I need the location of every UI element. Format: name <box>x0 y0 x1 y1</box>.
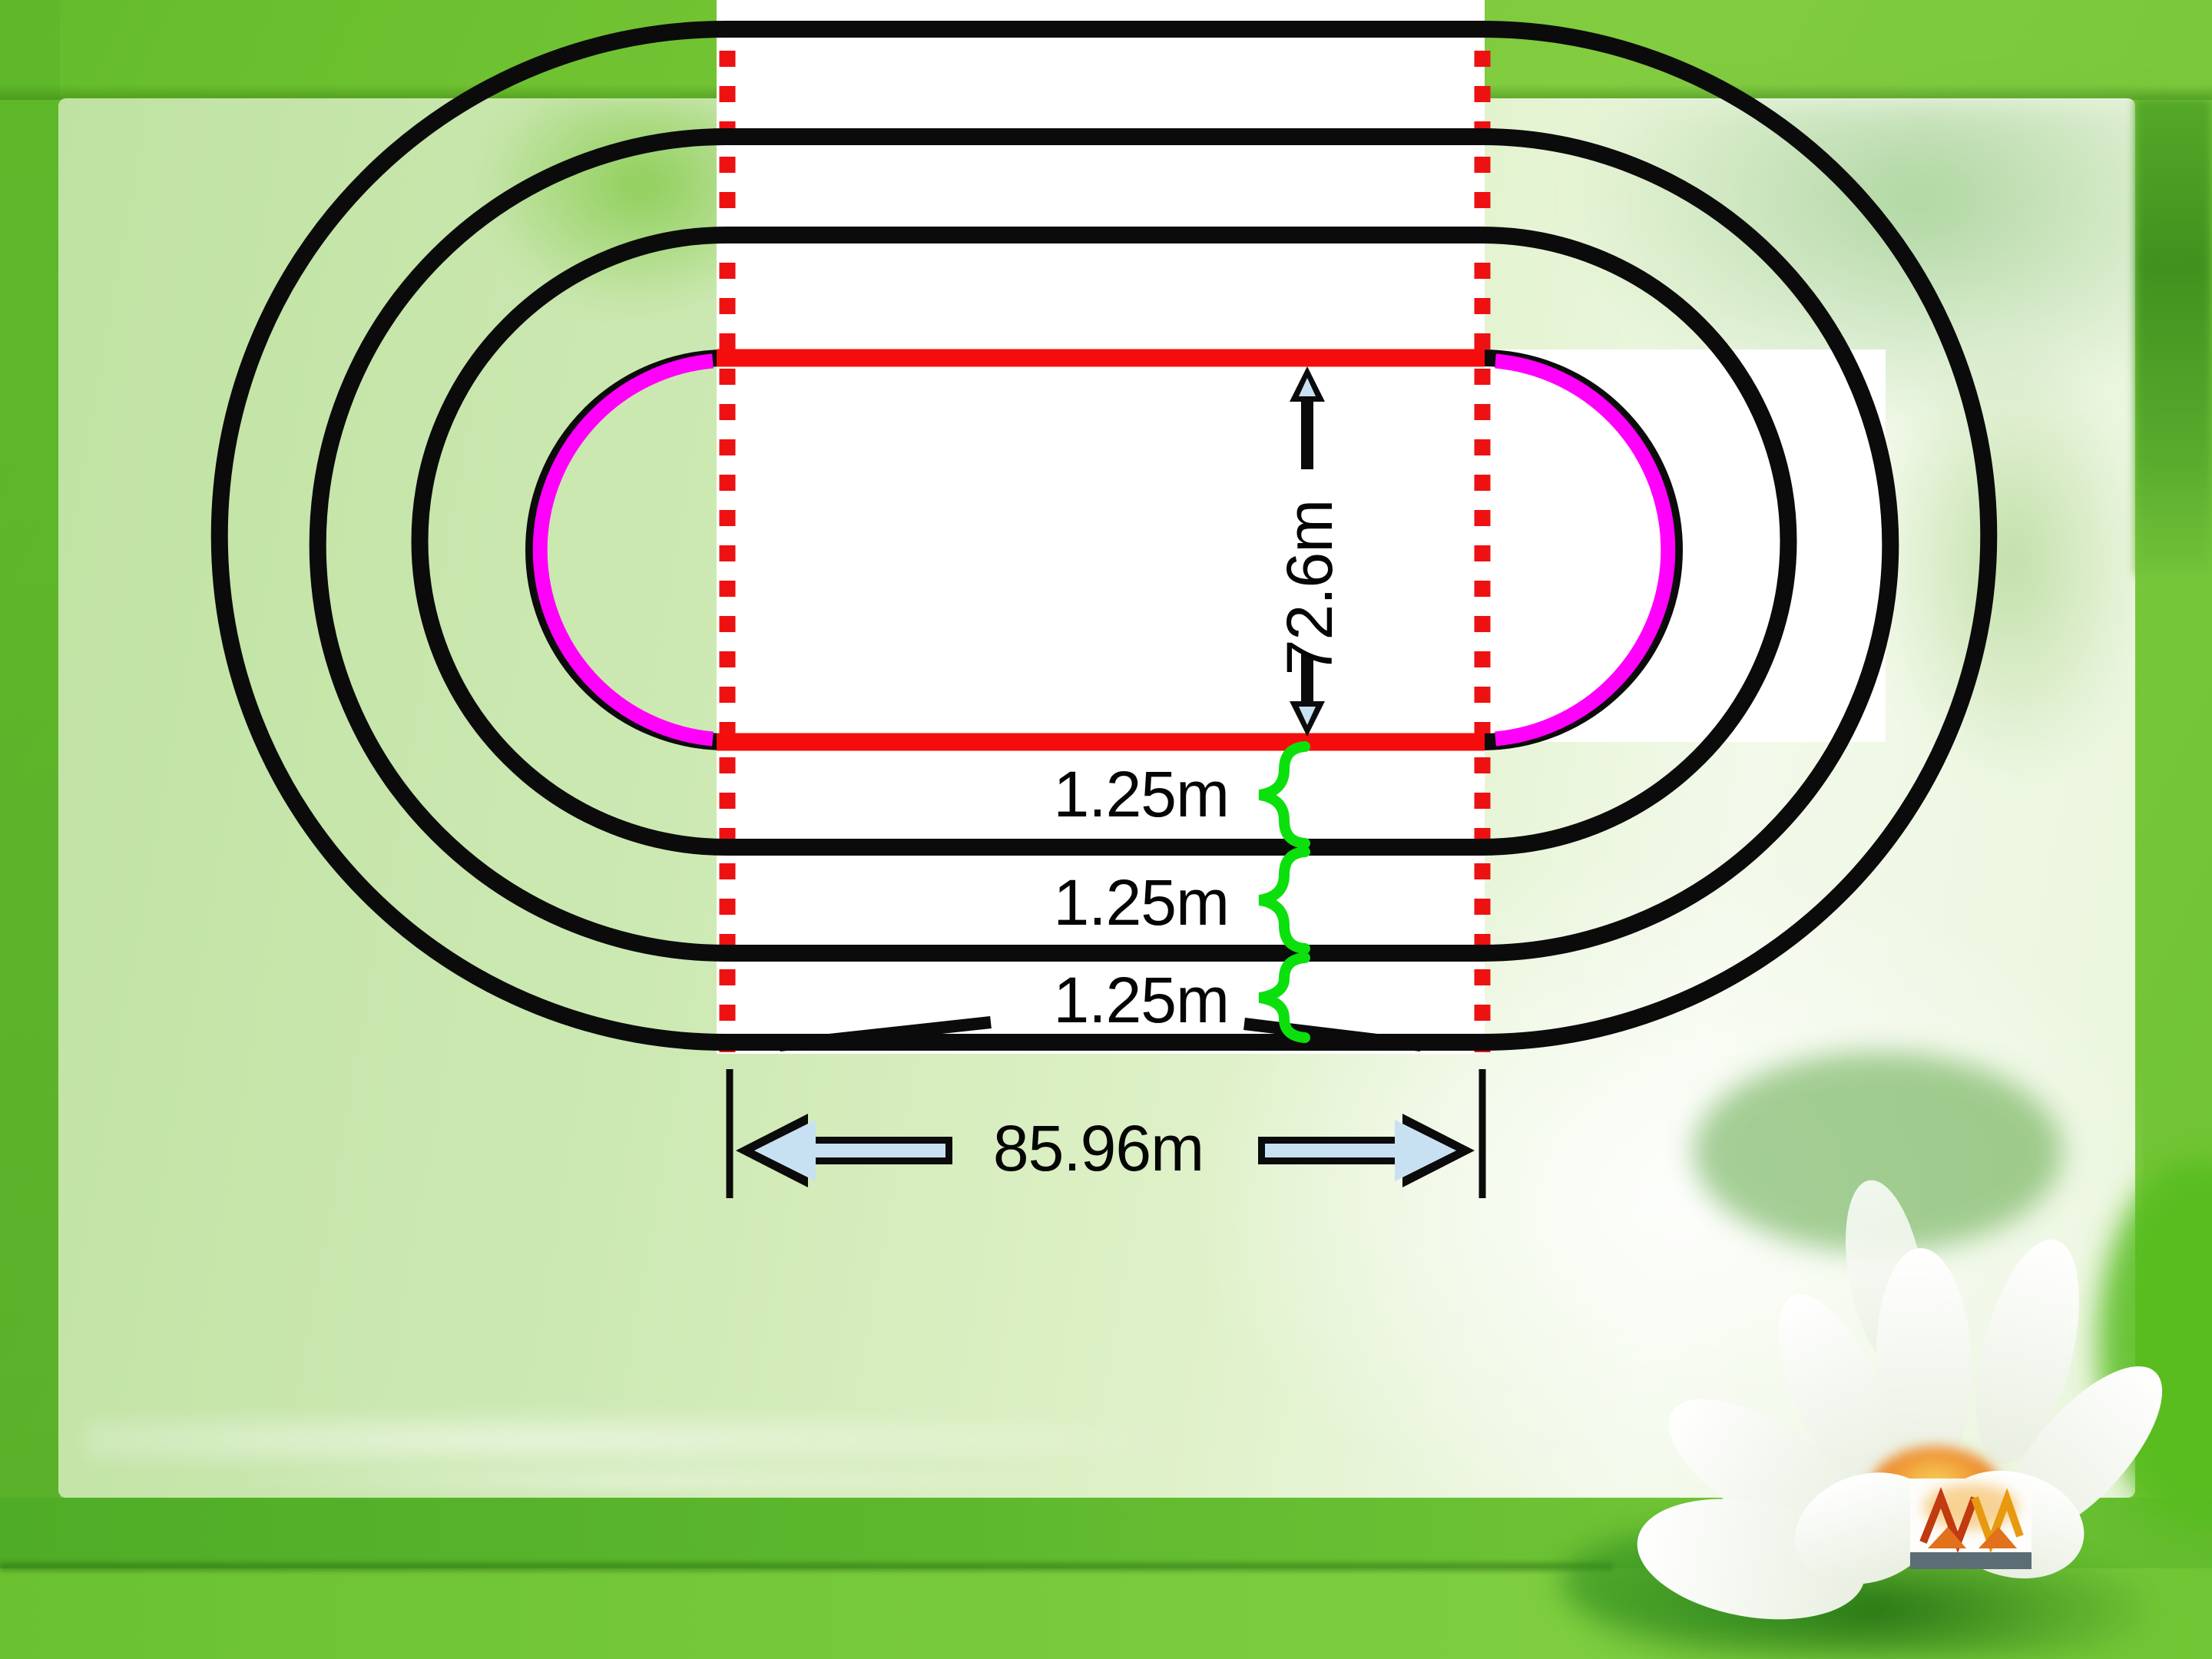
inner-lane-left-curve <box>540 361 713 739</box>
lane-width-label-3: 1.25m <box>876 968 1229 1032</box>
lane-width-label-2: 1.25m <box>876 870 1229 935</box>
logo-bar <box>1910 1552 2032 1569</box>
logo <box>1910 1479 2032 1569</box>
lane-width-label-1: 1.25m <box>876 762 1229 826</box>
lotus-flower <box>1559 1052 2212 1636</box>
straight-length-label: 85.96m <box>868 1116 1329 1181</box>
field-width-label: 72.6m <box>1277 357 1342 818</box>
infield-white-rect <box>1485 349 1886 742</box>
slide-canvas: 72.6m 1.25m 1.25m 1.25m 85.96m <box>0 0 2212 1659</box>
